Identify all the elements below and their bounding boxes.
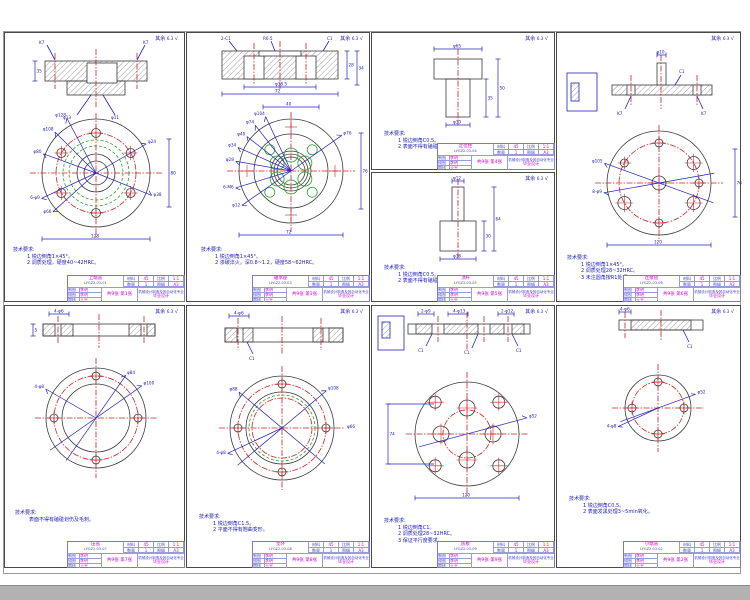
roughness-value: 6.3: [167, 36, 173, 41]
drawing-sheet: 2-φ94-φ132-φ12C1C1C1φ5274120 其余 6.3 √ 技术…: [371, 305, 555, 568]
signature-label: 制图: [624, 554, 636, 558]
sheet-number: 共9张 第2张: [658, 554, 694, 568]
roughness-label: 其余: [711, 36, 721, 42]
size-label: 图幅: [524, 150, 539, 156]
size-value: A3: [725, 282, 740, 288]
roughness-value: 6.3: [537, 36, 543, 41]
school-cell: 机械设计制造及其自动化专业 毕业设计: [694, 554, 740, 568]
sheet-number: 共9张 第8张: [287, 554, 323, 568]
part-name-cell: 定位柱 LYGZ2-03-04: [438, 144, 494, 155]
svg-text:6-M6: 6-M6: [223, 185, 234, 190]
signature-value: 李明: [450, 161, 471, 165]
signature-row: 审核王平: [253, 564, 286, 568]
signature-rows: 制图李明描图李明审核王平: [68, 288, 102, 302]
roughness-check-icon: √: [545, 176, 548, 182]
signature-label: 描图: [438, 161, 450, 165]
tech-note-line: 2 平面不得有翘曲变形。: [199, 527, 268, 534]
size-value: A3: [539, 282, 554, 288]
roughness-label: 其余: [155, 309, 165, 315]
signature-value: 李明: [636, 554, 657, 558]
signature-label: 描图: [68, 293, 80, 297]
roughness-label: 其余: [155, 36, 165, 42]
svg-text:φ66: φ66: [347, 424, 355, 429]
svg-text:72: 72: [275, 89, 281, 94]
signature-label: 审核: [624, 298, 636, 302]
school-line2: 毕业设计: [694, 560, 740, 564]
school-line2: 毕业设计: [138, 294, 184, 298]
tech-notes-lines: 表面不得有磕碰划伤及毛刺。: [15, 517, 94, 524]
tech-note-line: 2 调质处理，硬度40~42HRC。: [13, 260, 99, 267]
svg-text:35: 35: [37, 69, 43, 74]
svg-text:φ76: φ76: [343, 130, 351, 135]
svg-text:C1: C1: [516, 348, 522, 353]
signature-value: 李明: [265, 554, 286, 558]
svg-text:φ100: φ100: [144, 381, 155, 386]
school-line2: 毕业设计: [323, 560, 369, 564]
title-block-grid: 材料 45 比例 1:1 数量 1 图幅 A3: [494, 542, 554, 553]
signature-label: 制图: [438, 156, 450, 160]
signature-value: 王平: [636, 564, 657, 568]
svg-text:128: 128: [91, 234, 99, 239]
sheet-number: 共9张 第6张: [658, 288, 694, 302]
tech-notes-title: 技术要求:: [569, 496, 591, 502]
svg-text:φ34: φ34: [228, 143, 236, 148]
signature-label: 审核: [253, 564, 265, 568]
tech-notes-title: 技术要求:: [384, 518, 406, 524]
roughness-label: 其余: [525, 36, 535, 42]
drawing-number: LYGZ2-03-02: [624, 547, 679, 551]
part-name-cell: 小端盖 LYGZ2-03-02: [624, 542, 680, 553]
part-name-cell: 垫环 LYGZ2-03-08: [253, 542, 309, 553]
title-block: 连接盘 LYGZ2-03-06 材料 45 比例 1:1 数量 1 图幅 A3 …: [623, 275, 741, 302]
size-label: 图幅: [710, 282, 725, 288]
svg-text:φ38.5: φ38.5: [275, 82, 287, 87]
svg-text:φ38: φ38: [153, 192, 161, 197]
signature-value: 王平: [80, 564, 101, 568]
school-line2: 毕业设计: [694, 294, 740, 298]
title-block-grid: 材料 45 比例 1:1 数量 1 图幅 A3: [680, 542, 740, 553]
size-value: A3: [725, 548, 740, 554]
svg-text:74: 74: [390, 432, 396, 437]
tech-note-line: 2 表面发黑处理3~5min氧化。: [569, 509, 653, 516]
roughness-value: 6.3: [352, 309, 358, 314]
surface-roughness-mark: 其余 6.3 √: [525, 36, 548, 42]
drawing-geometry: 4-φ65φ100φ844-φ8: [5, 306, 186, 569]
svg-text:C1: C1: [679, 69, 685, 74]
size-value: A3: [539, 150, 554, 156]
signature-row: 审核王平: [624, 298, 657, 302]
signature-value: 李明: [265, 288, 286, 292]
signature-label: 描图: [438, 293, 450, 297]
svg-text:φ11: φ11: [111, 115, 119, 120]
svg-text:4-φ6: 4-φ6: [234, 311, 244, 316]
qty-label: 数量: [494, 548, 509, 554]
svg-text:C1: C1: [464, 350, 470, 355]
svg-text:4-φ13: 4-φ13: [453, 309, 466, 314]
svg-text:50: 50: [500, 86, 506, 91]
drawing-sheet: 4-φ65φ100φ844-φ8 其余 6.3 √ 技术要求: 表面不得有磕碰划…: [4, 305, 185, 568]
svg-text:4-φ8: 4-φ8: [34, 384, 44, 389]
roughness-label: 其余: [711, 309, 721, 315]
signature-label: 制图: [438, 554, 450, 558]
signature-value: 李明: [450, 554, 471, 558]
signature-value: 王平: [450, 564, 471, 568]
title-block: 小端盖 LYGZ2-03-02 材料 45 比例 1:1 数量 1 图幅 A3 …: [623, 541, 741, 568]
tech-notes-lines: 1 锐边倒角C0.5。2 表面发黑处理3~5min氧化。: [569, 503, 653, 516]
school-cell: 机械设计制造及其自动化专业 毕业设计: [323, 554, 369, 568]
drawing-number: LYGZ2-03-01: [68, 281, 123, 285]
roughness-label: 其余: [340, 309, 350, 315]
tech-notes-lines: 1 锐边倒角1×45°。2 调质处理，硬度40~42HRC。: [13, 254, 99, 267]
tech-notes-lines: 1 锐边倒角C1.5。2 平面不得有翘曲变形。: [199, 521, 268, 534]
svg-text:K7: K7: [39, 40, 45, 45]
qty-value: 1: [695, 282, 710, 288]
tech-notes-title: 技术要求:: [384, 131, 406, 137]
qty-label: 数量: [124, 548, 139, 554]
qty-value: 1: [324, 548, 339, 554]
drawing-sheet: φ10K7K7C1φ1058-φ976120 其余 6.3 √ 技术要求: 1 …: [556, 32, 741, 302]
signature-label: 制图: [68, 288, 80, 292]
signature-label: 审核: [438, 298, 450, 302]
svg-text:64: 64: [496, 217, 502, 222]
qty-value: 1: [509, 282, 524, 288]
tech-notes: 技术要求: 1 锐边倒角1×45°。2 调质处理，硬度40~42HRC。: [13, 247, 99, 267]
title-block: 上端盖 LYGZ2-03-01 材料 45 比例 1:1 数量 1 图幅 A3 …: [67, 275, 185, 302]
tech-notes-title: 技术要求:: [567, 255, 589, 261]
svg-text:φ128: φ128: [55, 112, 66, 117]
qty-label: 数量: [680, 548, 695, 554]
qty-value: 1: [139, 282, 154, 288]
signature-label: 描图: [253, 293, 265, 297]
sheet-number: 共9张 第4张: [472, 156, 508, 170]
title-block: 定位柱 LYGZ2-03-04 材料 45 比例 1:1 数量 1 图幅 A3 …: [437, 143, 555, 170]
svg-text:40: 40: [286, 102, 292, 107]
part-name-cell: 顶杆 LYGZ2-03-05: [438, 276, 494, 287]
signature-value: 李明: [450, 288, 471, 292]
school-cell: 机械设计制造及其自动化专业 毕业设计: [138, 554, 184, 568]
qty-value: 1: [509, 150, 524, 156]
surface-roughness-mark: 其余 6.3 √: [340, 36, 363, 42]
size-value: A3: [354, 548, 369, 554]
sheet-number: 共9张 第3张: [287, 288, 323, 302]
qty-value: 1: [324, 282, 339, 288]
signature-row: 审核王平: [253, 298, 286, 302]
qty-value: 1: [695, 548, 710, 554]
svg-text:76: 76: [363, 169, 369, 174]
signature-row: 审核王平: [438, 166, 471, 170]
svg-text:φ108: φ108: [328, 385, 339, 390]
signature-rows: 制图李明描图李明审核王平: [624, 554, 658, 568]
size-label: 图幅: [339, 548, 354, 554]
size-label: 图幅: [154, 282, 169, 288]
drawing-number: LYGZ2-03-03: [253, 281, 308, 285]
signature-value: 李明: [265, 559, 286, 563]
school-cell: 机械设计制造及其自动化专业 毕业设计: [508, 554, 554, 568]
drawing-number: LYGZ2-03-08: [253, 547, 308, 551]
svg-text:34: 34: [359, 66, 365, 71]
svg-text:2-φ9: 2-φ9: [421, 309, 431, 314]
signature-rows: 制图李明描图李明审核王平: [624, 288, 658, 302]
qty-label: 数量: [680, 282, 695, 288]
signature-value: 李明: [80, 293, 101, 297]
title-block-grid: 材料 45 比例 1:1 数量 1 图幅 A3: [680, 276, 740, 287]
bottom-gray-bar: [0, 585, 750, 600]
signature-value: 李明: [636, 288, 657, 292]
signature-row: 审核王平: [624, 564, 657, 568]
drawing-number: LYGZ2-03-09: [438, 547, 493, 551]
signature-rows: 制图李明描图李明审核王平: [438, 156, 472, 170]
signature-value: 李明: [80, 288, 101, 292]
svg-text:φ80: φ80: [33, 149, 41, 154]
svg-text:4-φ6: 4-φ6: [54, 309, 64, 314]
signature-label: 审核: [438, 564, 450, 568]
tech-notes-lines: 1 锐边倒角1×45°。2 渗碳淬火，深0.8~1.2，硬度58~62HRC。: [201, 254, 317, 267]
signature-label: 制图: [253, 554, 265, 558]
surface-roughness-mark: 其余 6.3 √: [155, 36, 178, 42]
tech-note-line: 2 渗碳淬火，深0.8~1.2，硬度58~62HRC。: [201, 260, 317, 267]
school-cell: 机械设计制造及其自动化专业 毕业设计: [694, 288, 740, 302]
roughness-check-icon: √: [360, 309, 363, 315]
size-label: 图幅: [154, 548, 169, 554]
sheet-number: 共9张 第5张: [472, 288, 508, 302]
part-name-cell: 压盖 LYGZ2-03-07: [68, 542, 124, 553]
qty-label: 数量: [309, 282, 324, 288]
school-line2: 毕业设计: [138, 560, 184, 564]
svg-text:φ108: φ108: [43, 127, 54, 132]
surface-roughness-mark: 其余 6.3 √: [525, 309, 548, 315]
qty-value: 1: [139, 548, 154, 554]
svg-text:K7: K7: [617, 111, 623, 116]
svg-text:4-φ8: 4-φ8: [607, 423, 617, 428]
signature-label: 描图: [624, 293, 636, 297]
signature-value: 李明: [636, 559, 657, 563]
signature-label: 审核: [68, 564, 80, 568]
signature-label: 审核: [68, 298, 80, 302]
size-label: 图幅: [524, 548, 539, 554]
size-label: 图幅: [339, 282, 354, 288]
svg-text:φ40: φ40: [237, 131, 245, 136]
signature-rows: 制图李明描图李明审核王平: [68, 554, 102, 568]
signature-value: 王平: [636, 298, 657, 302]
svg-text:φ36: φ36: [453, 254, 461, 259]
svg-text:φ12: φ12: [453, 176, 461, 181]
size-value: A3: [169, 548, 184, 554]
school-line2: 毕业设计: [323, 294, 369, 298]
svg-text:C1: C1: [249, 356, 255, 361]
svg-text:φ28: φ28: [226, 157, 234, 162]
size-label: 图幅: [710, 548, 725, 554]
signature-row: 审核王平: [438, 564, 471, 568]
title-block-grid: 材料 45 比例 1:1 数量 1 图幅 A3: [309, 542, 369, 553]
roughness-label: 其余: [340, 36, 350, 42]
svg-text:φ12: φ12: [232, 203, 240, 208]
svg-text:φ88: φ88: [229, 387, 237, 392]
svg-text:φ74: φ74: [246, 120, 254, 125]
svg-text:φ65: φ65: [453, 44, 461, 49]
svg-text:φ10: φ10: [657, 50, 665, 55]
drawing-number: LYGZ2-03-07: [68, 547, 123, 551]
surface-roughness-mark: 其余 6.3 √: [711, 309, 734, 315]
signature-label: 制图: [68, 554, 80, 558]
part-name-cell: 底板 LYGZ2-03-09: [438, 542, 494, 553]
signature-label: 审核: [624, 564, 636, 568]
signature-row: 审核王平: [68, 564, 101, 568]
title-block-grid: 材料 45 比例 1:1 数量 1 图幅 A3: [124, 276, 184, 287]
school-line2: 毕业设计: [508, 162, 554, 166]
roughness-value: 6.3: [537, 309, 543, 314]
tech-notes: 技术要求: 1 锐边倒角C0.5。2 表面发黑处理3~5min氧化。: [569, 496, 653, 516]
signature-value: 王平: [265, 298, 286, 302]
title-block-grid: 材料 45 比例 1:1 数量 1 图幅 A3: [494, 276, 554, 287]
title-block-grid: 材料 45 比例 1:1 数量 1 图幅 A3: [494, 144, 554, 155]
title-block: 垫环 LYGZ2-03-08 材料 45 比例 1:1 数量 1 图幅 A3 制…: [252, 541, 370, 568]
roughness-value: 6.3: [537, 176, 543, 181]
svg-text:2-C1: 2-C1: [221, 36, 231, 41]
drawing-geometry: 4-φ6C1φ524-φ8: [557, 306, 742, 569]
tech-notes: 技术要求: 表面不得有磕碰划伤及毛刺。: [15, 510, 94, 523]
drawing-sheet: φ126430φ36 其余 6.3 √ 技术要求: 1 锐边倒角C0.5。2 表…: [371, 172, 555, 302]
roughness-check-icon: √: [360, 36, 363, 42]
size-label: 图幅: [524, 282, 539, 288]
signature-value: 李明: [265, 293, 286, 297]
title-block: 轴承座 LYGZ2-03-03 材料 45 比例 1:1 数量 1 图幅 A3 …: [252, 275, 370, 302]
drawing-sheet: 4-φ6C1φ108φ884-φ8φ66 其余 6.3 √ 技术要求: 1 锐边…: [186, 305, 370, 568]
signature-label: 描图: [253, 559, 265, 563]
roughness-check-icon: √: [175, 36, 178, 42]
svg-text:4-φ8: 4-φ8: [216, 450, 226, 455]
part-name-cell: 连接盘 LYGZ2-03-06: [624, 276, 680, 287]
svg-text:72: 72: [286, 230, 292, 235]
roughness-value: 6.3: [167, 309, 173, 314]
signature-value: 李明: [80, 559, 101, 563]
signature-label: 制图: [253, 288, 265, 292]
signature-value: 李明: [636, 293, 657, 297]
svg-text:φ105: φ105: [592, 158, 603, 163]
drawing-number: LYGZ2-03-04: [438, 149, 493, 153]
svg-text:φ84: φ84: [127, 370, 135, 375]
svg-text:80: 80: [171, 171, 177, 176]
svg-text:8-φ9: 8-φ9: [592, 189, 602, 194]
school-cell: 机械设计制造及其自动化专业 毕业设计: [138, 288, 184, 302]
svg-text:120: 120: [462, 493, 470, 498]
roughness-check-icon: √: [545, 309, 548, 315]
signature-label: 制图: [438, 288, 450, 292]
roughness-check-icon: √: [545, 36, 548, 42]
title-block-grid: 材料 45 比例 1:1 数量 1 图幅 A3: [124, 542, 184, 553]
drawing-sheet: φ655035φ30 其余 6.3 √ 技术要求: 1 锐边倒角C0.5。2 表…: [371, 32, 555, 170]
drawing-number: LYGZ2-03-06: [624, 281, 679, 285]
size-value: A3: [539, 548, 554, 554]
sheet-number: 共9张 第7张: [102, 554, 138, 568]
signature-value: 王平: [80, 298, 101, 302]
school-line2: 毕业设计: [508, 294, 554, 298]
svg-text:φ66: φ66: [43, 209, 51, 214]
qty-label: 数量: [309, 548, 324, 554]
part-name-cell: 上端盖 LYGZ2-03-01: [68, 276, 124, 287]
qty-label: 数量: [494, 282, 509, 288]
drawing-number: LYGZ2-03-05: [438, 281, 493, 285]
roughness-check-icon: √: [731, 309, 734, 315]
tech-notes-title: 技术要求:: [384, 265, 406, 271]
svg-text:120: 120: [654, 240, 662, 245]
svg-text:R6.5: R6.5: [263, 36, 273, 41]
signature-rows: 制图李明描图李明审核王平: [438, 554, 472, 568]
svg-text:35: 35: [488, 96, 494, 101]
title-block: 压盖 LYGZ2-03-07 材料 45 比例 1:1 数量 1 图幅 A3 制…: [67, 541, 185, 568]
svg-text:C1: C1: [418, 348, 424, 353]
surface-roughness-mark: 其余 6.3 √: [711, 36, 734, 42]
svg-text:K7: K7: [143, 40, 149, 45]
svg-text:6-φ9: 6-φ9: [30, 195, 40, 200]
tech-notes-title: 技术要求:: [201, 247, 223, 253]
svg-text:C1: C1: [327, 36, 333, 41]
signature-label: 审核: [253, 298, 265, 302]
tech-note-line: 表面不得有磕碰划伤及毛刺。: [15, 517, 94, 524]
title-block: 顶杆 LYGZ2-03-05 材料 45 比例 1:1 数量 1 图幅 A3 制…: [437, 275, 555, 302]
signature-value: 王平: [450, 166, 471, 170]
drawing-sheet: 35K7K7φ13φ11φ128φ108φ806-φ9φ66φ38φ241288…: [4, 32, 185, 302]
surface-roughness-mark: 其余 6.3 √: [155, 309, 178, 315]
svg-text:φ52: φ52: [697, 390, 705, 395]
svg-text:28: 28: [349, 63, 355, 68]
signature-value: 王平: [265, 564, 286, 568]
signature-rows: 制图李明描图李明审核王平: [438, 288, 472, 302]
roughness-check-icon: √: [175, 309, 178, 315]
sheet-number: 共9张 第1张: [102, 288, 138, 302]
school-cell: 机械设计制造及其自动化专业 毕业设计: [508, 156, 554, 170]
signature-label: 描图: [438, 559, 450, 563]
tech-notes-title: 技术要求:: [13, 247, 35, 253]
tech-notes: 技术要求: 1 锐边倒角1×45°。2 渗碳淬火，深0.8~1.2，硬度58~6…: [201, 247, 317, 267]
svg-text:φ30: φ30: [453, 120, 461, 125]
roughness-label: 其余: [525, 309, 535, 315]
svg-text:2-φ12: 2-φ12: [501, 309, 514, 314]
school-cell: 机械设计制造及其自动化专业 毕业设计: [508, 288, 554, 302]
signature-value: 李明: [450, 293, 471, 297]
svg-text:30: 30: [486, 234, 492, 239]
svg-text:C1: C1: [687, 344, 693, 349]
svg-text:φ24: φ24: [148, 139, 156, 144]
signature-label: 制图: [624, 288, 636, 292]
size-value: A3: [354, 282, 369, 288]
qty-label: 数量: [124, 282, 139, 288]
signature-value: 李明: [450, 559, 471, 563]
signature-label: 描图: [624, 559, 636, 563]
signature-rows: 制图李明描图李明审核王平: [253, 288, 287, 302]
signature-rows: 制图李明描图李明审核王平: [253, 554, 287, 568]
roughness-value: 6.3: [352, 36, 358, 41]
cad-drawing-canvas: 35K7K7φ13φ11φ128φ108φ806-φ9φ66φ38φ241288…: [0, 0, 750, 600]
signature-row: 审核王平: [68, 298, 101, 302]
signature-label: 描图: [68, 559, 80, 563]
surface-roughness-mark: 其余 6.3 √: [525, 176, 548, 182]
school-line2: 毕业设计: [508, 560, 554, 564]
drawing-sheet: 2834φ38.5722-C1R6.5C1φ104φ74φ40φ34φ286-M…: [186, 32, 370, 302]
title-block: 底板 LYGZ2-03-09 材料 45 比例 1:1 数量 1 图幅 A3 制…: [437, 541, 555, 568]
surface-roughness-mark: 其余 6.3 √: [340, 309, 363, 315]
signature-label: 审核: [438, 166, 450, 170]
qty-label: 数量: [494, 150, 509, 156]
svg-text:φ104: φ104: [254, 111, 265, 116]
signature-row: 审核王平: [438, 298, 471, 302]
roughness-value: 6.3: [723, 309, 729, 314]
qty-value: 1: [509, 548, 524, 554]
svg-text:76: 76: [737, 181, 743, 186]
svg-text:5: 5: [35, 328, 38, 333]
signature-value: 李明: [450, 156, 471, 160]
svg-text:K7: K7: [701, 111, 707, 116]
sheet-number: 共9张 第9张: [472, 554, 508, 568]
